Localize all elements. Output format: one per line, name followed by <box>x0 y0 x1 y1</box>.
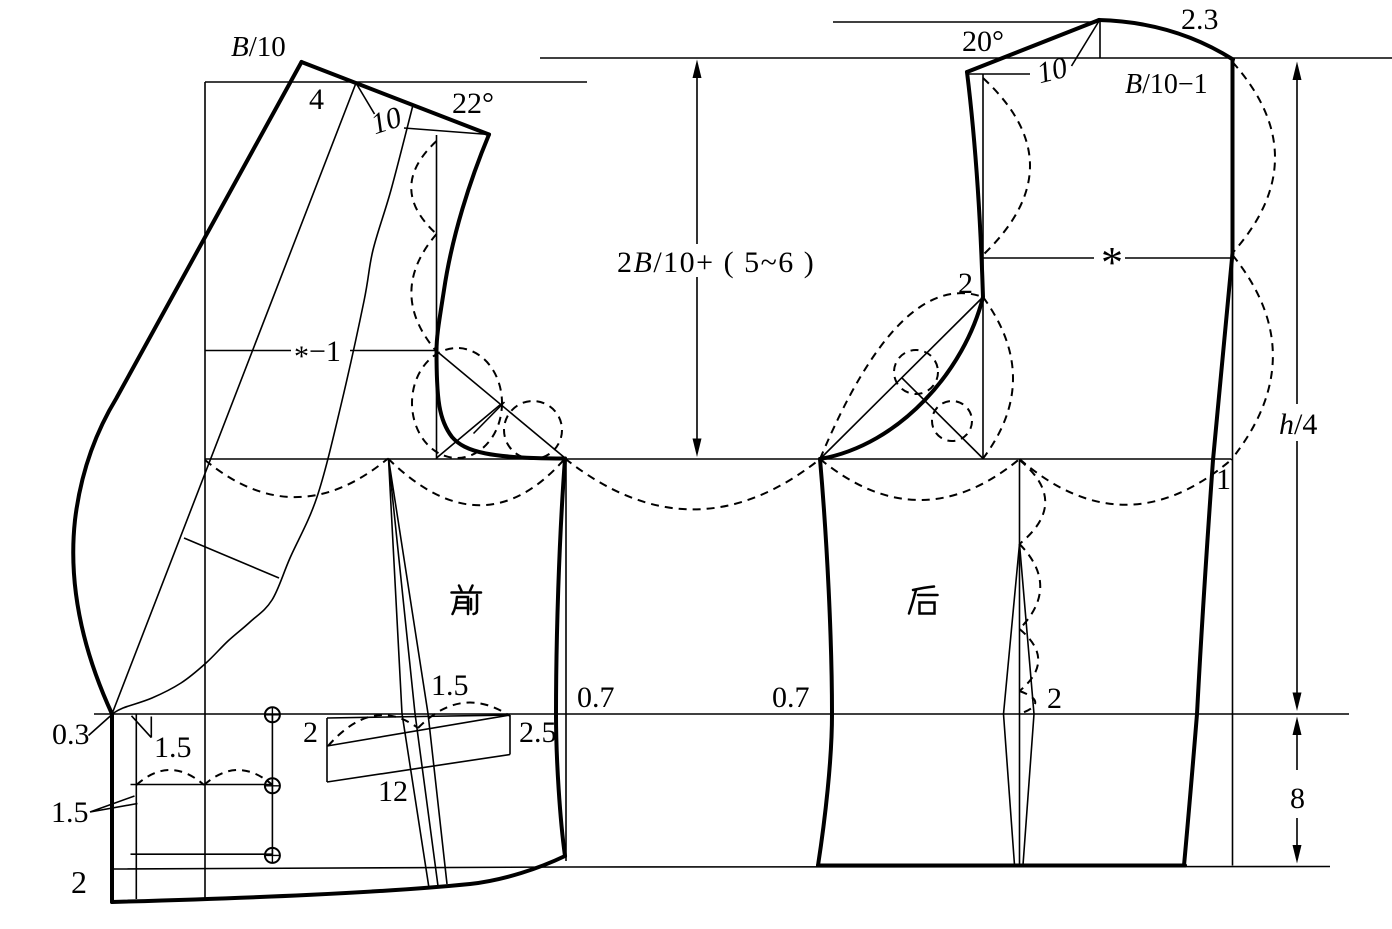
svg-text:4: 4 <box>309 83 324 116</box>
svg-text:B/10−1: B/10−1 <box>1125 69 1208 100</box>
svg-text:12: 12 <box>378 775 408 808</box>
svg-text:10: 10 <box>367 100 406 141</box>
svg-text:0.7: 0.7 <box>772 681 810 714</box>
svg-text:1.5: 1.5 <box>51 796 89 829</box>
svg-text:2: 2 <box>303 716 318 749</box>
svg-text:h/4: h/4 <box>1279 408 1317 441</box>
svg-text:2: 2 <box>71 864 87 900</box>
svg-text:10: 10 <box>1034 51 1071 90</box>
svg-text:2: 2 <box>1047 682 1062 715</box>
svg-text:1.5: 1.5 <box>431 669 469 702</box>
svg-text:*: * <box>294 340 309 373</box>
svg-text:2: 2 <box>958 267 973 300</box>
svg-text:2.5: 2.5 <box>519 716 557 749</box>
svg-text:2B/10+ ( 5~6 ): 2B/10+ ( 5~6 ) <box>617 246 815 279</box>
svg-text:2.3: 2.3 <box>1181 3 1219 36</box>
svg-text:B/10: B/10 <box>231 31 286 63</box>
svg-text:22°: 22° <box>452 87 494 120</box>
svg-text:−1: −1 <box>309 335 341 368</box>
svg-text:0.7: 0.7 <box>577 681 615 714</box>
svg-text:*: * <box>1101 238 1123 287</box>
svg-text:8: 8 <box>1290 782 1305 815</box>
svg-text:1: 1 <box>1216 463 1231 496</box>
svg-text:0.3: 0.3 <box>52 718 90 751</box>
svg-text:20°: 20° <box>962 25 1004 58</box>
svg-text:1.5: 1.5 <box>154 731 192 764</box>
